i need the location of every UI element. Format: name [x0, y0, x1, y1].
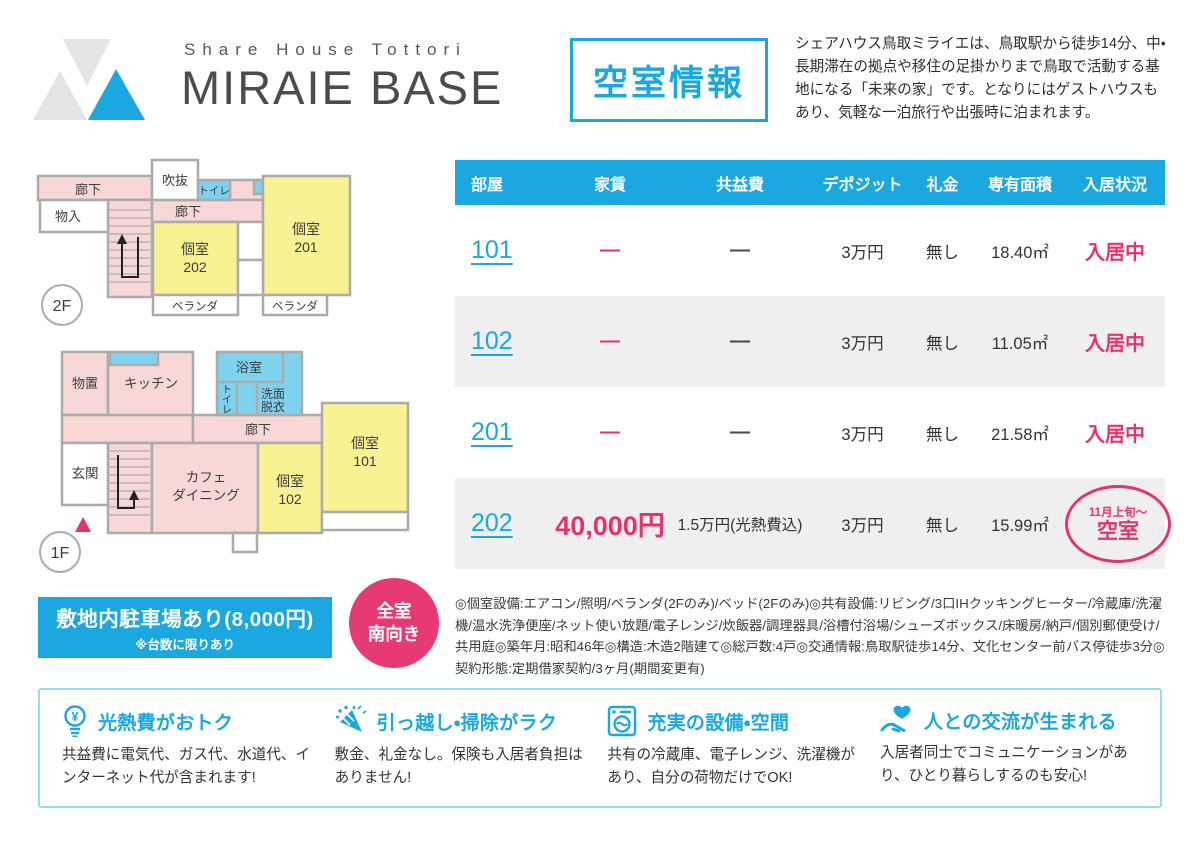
- room-label-101-name: 個室: [351, 435, 379, 451]
- room-link-202[interactable]: 202: [471, 509, 513, 537]
- floorplan-2f: 2F 廊下 吹抜 トイレ 物入 廊下 個室 202 個室 201 ベランダ ベラ…: [30, 152, 440, 332]
- logo-title: MIRAIE BASE: [181, 60, 503, 115]
- feature-title: 充実の設備・空間: [647, 708, 789, 735]
- table-row: 202 40,000円 1.5万円(光熱費込) 3万円 無し 15.99㎡ 11…: [455, 478, 1165, 569]
- room-label-202-num: 202: [183, 259, 207, 275]
- table-row: 102 — — 3万円 無し 11.05㎡ 入居中: [455, 296, 1165, 387]
- deposit-value: 3万円: [815, 239, 910, 263]
- room-label-void: 吹抜: [162, 173, 188, 188]
- col-header-status: 入居状況: [1065, 171, 1165, 195]
- hand-heart-icon: [880, 705, 914, 735]
- room-label-101-num: 101: [353, 453, 377, 469]
- rent-value: —: [555, 421, 665, 444]
- room-label-corridor-1f: 廊下: [245, 422, 271, 437]
- rent-value: —: [555, 330, 665, 353]
- feature-body: 入居者同士でコミュニケーションがあり、ひとり暮らしするのも安心!: [880, 742, 1138, 787]
- col-header-room: 部屋: [455, 171, 555, 195]
- room-label-bath: 浴室: [236, 360, 262, 375]
- entrance-marker-icon: [75, 517, 91, 532]
- common-fee-value: —: [665, 239, 815, 262]
- room-label-washroom-2: 脱衣: [261, 399, 285, 414]
- area-value: 11.05㎡: [975, 330, 1065, 354]
- room-label-cafe-1: カフェ: [186, 470, 227, 485]
- south-facing-badge: 全室 南向き: [349, 578, 439, 668]
- miraie-logo-icon: [33, 38, 148, 123]
- col-header-area: 専有面積: [975, 171, 1065, 195]
- parking-title: 敷地内駐車場あり(8,000円): [56, 602, 313, 632]
- logo-subtitle: Share House Tottori: [184, 40, 467, 60]
- area-value: 21.58㎡: [975, 421, 1065, 445]
- room-label-entrance: 玄関: [72, 466, 99, 481]
- status-badge: 入居中: [1065, 418, 1165, 447]
- flyer-page: Share House Tottori MIRAIE BASE 空室情報 シェア…: [0, 0, 1200, 848]
- rent-value: —: [555, 239, 665, 262]
- header-description: シェアハウス鳥取ミライエは、鳥取駅から徒歩14分、中・長期滞在の拠点や移住の足掛…: [795, 33, 1170, 125]
- feature-moving: 引っ越し・掃除がラク 敷金、礼金なし。保険も入居者負担はありません!: [335, 705, 593, 791]
- parking-note: ※台数に限りあり: [135, 634, 235, 653]
- room-label-cafe-2: ダイニング: [172, 488, 240, 503]
- room-label-kitchen: キッチン: [124, 376, 178, 391]
- feature-body: 敷金、礼金なし。保険も入居者負担はありません!: [335, 744, 593, 789]
- common-fee-value: —: [665, 330, 815, 353]
- floor-label-1f: 1F: [51, 545, 70, 562]
- room-label-washroom-1: 洗面: [261, 387, 285, 401]
- svg-text:¥: ¥: [71, 709, 79, 724]
- key-money-value: 無し: [910, 512, 975, 536]
- room-link-101[interactable]: 101: [471, 236, 513, 264]
- key-money-value: 無し: [910, 421, 975, 445]
- party-popper-icon: [335, 705, 367, 737]
- room-label-102-name: 個室: [276, 473, 304, 489]
- room-label-201-num: 201: [294, 239, 318, 255]
- table-row: 101 — — 3万円 無し 18.40㎡ 入居中: [455, 205, 1165, 296]
- common-fee-value: —: [665, 421, 815, 444]
- room-label-corridor-top-2f: 廊下: [75, 182, 101, 197]
- feature-body: 共有の冷蔵庫、電子レンジ、洗濯機があり、自分の荷物だけでOK!: [607, 744, 865, 789]
- washing-machine-icon: [607, 705, 637, 737]
- room-label-corridor-mid-2f: 廊下: [175, 204, 201, 219]
- floorplan-1f: 1F 物置 キッチン 浴室 ト イ レ 洗面 脱衣 廊下 玄関 カフェ ダイニン…: [30, 340, 440, 575]
- parking-banner: 敷地内駐車場あり(8,000円) ※台数に限りあり: [38, 597, 332, 658]
- room-label-storage-2f: 物入: [55, 209, 81, 224]
- room-label-veranda-right: ベランダ: [272, 299, 318, 313]
- key-money-value: 無し: [910, 330, 975, 354]
- deposit-value: 3万円: [815, 421, 910, 445]
- table-row: 201 — — 3万円 無し 21.58㎡ 入居中: [455, 387, 1165, 478]
- floor-label-2f: 2F: [53, 298, 72, 315]
- room-label-102-num: 102: [278, 491, 302, 507]
- col-header-key-money: 礼金: [910, 171, 975, 195]
- feature-title: 光熱費がおトク: [98, 708, 233, 735]
- common-fee-value: 1.5万円(光熱費込): [665, 513, 815, 535]
- area-value: 18.40㎡: [975, 239, 1065, 263]
- room-label-201-name: 個室: [292, 221, 320, 237]
- vacant-date: 11月上旬〜: [1089, 504, 1147, 520]
- room-link-201[interactable]: 201: [471, 418, 513, 446]
- room-link-102[interactable]: 102: [471, 327, 513, 355]
- col-header-rent: 家賃: [555, 171, 665, 195]
- col-header-common-fee: 共益費: [665, 171, 815, 195]
- vacant-from-badge: 11月上旬〜 空室: [1065, 485, 1171, 563]
- yen-lightbulb-icon: ¥: [62, 705, 88, 737]
- vacancy-info-heading: 空室情報: [570, 38, 768, 122]
- room-label-veranda-left: ベランダ: [172, 299, 218, 313]
- vacancy-table: 部屋 家賃 共益費 デポジット 礼金 専有面積 入居状況 101 — — 3万円…: [455, 160, 1165, 569]
- property-notes: ◎個室設備:エアコン/照明/ベランダ(2Fのみ)/ベッド(2Fのみ)◎共有設備:…: [455, 593, 1169, 680]
- feature-utilities: ¥ 光熱費がおトク 共益費に電気代、ガス代、水道代、インターネット代が含まれます…: [62, 705, 320, 791]
- feature-body: 共益費に電気代、ガス代、水道代、インターネット代が含まれます!: [62, 744, 320, 789]
- status-badge: 入居中: [1065, 327, 1165, 356]
- feature-community: 人との交流が生まれる 入居者同士でコミュニケーションがあり、ひとり暮らしするのも…: [880, 705, 1138, 791]
- feature-title: 人との交流が生まれる: [924, 707, 1117, 734]
- south-badge-line1: 全室: [377, 600, 412, 623]
- rent-value: 40,000円: [555, 504, 665, 543]
- feature-title: 引っ越し・掃除がラク: [377, 708, 557, 735]
- room-label-storage-1f: 物置: [72, 376, 98, 391]
- table-header-row: 部屋 家賃 共益費 デポジット 礼金 専有面積 入居状況: [455, 160, 1165, 205]
- vacant-label: 空室: [1097, 520, 1139, 543]
- room-label-202-name: 個室: [181, 241, 209, 257]
- deposit-value: 3万円: [815, 512, 910, 536]
- area-value: 15.99㎡: [975, 512, 1065, 536]
- deposit-value: 3万円: [815, 330, 910, 354]
- col-header-deposit: デポジット: [815, 171, 910, 195]
- status-badge: 入居中: [1065, 236, 1165, 265]
- key-money-value: 無し: [910, 239, 975, 263]
- room-label-toilet-2f: トイレ: [198, 185, 230, 197]
- features-panel: ¥ 光熱費がおトク 共益費に電気代、ガス代、水道代、インターネット代が含まれます…: [38, 688, 1162, 808]
- room-label-toilet-1f-3: レ: [222, 405, 232, 416]
- south-badge-line2: 南向き: [368, 623, 421, 646]
- feature-facilities: 充実の設備・空間 共有の冷蔵庫、電子レンジ、洗濯機があり、自分の荷物だけでOK!: [607, 705, 865, 791]
